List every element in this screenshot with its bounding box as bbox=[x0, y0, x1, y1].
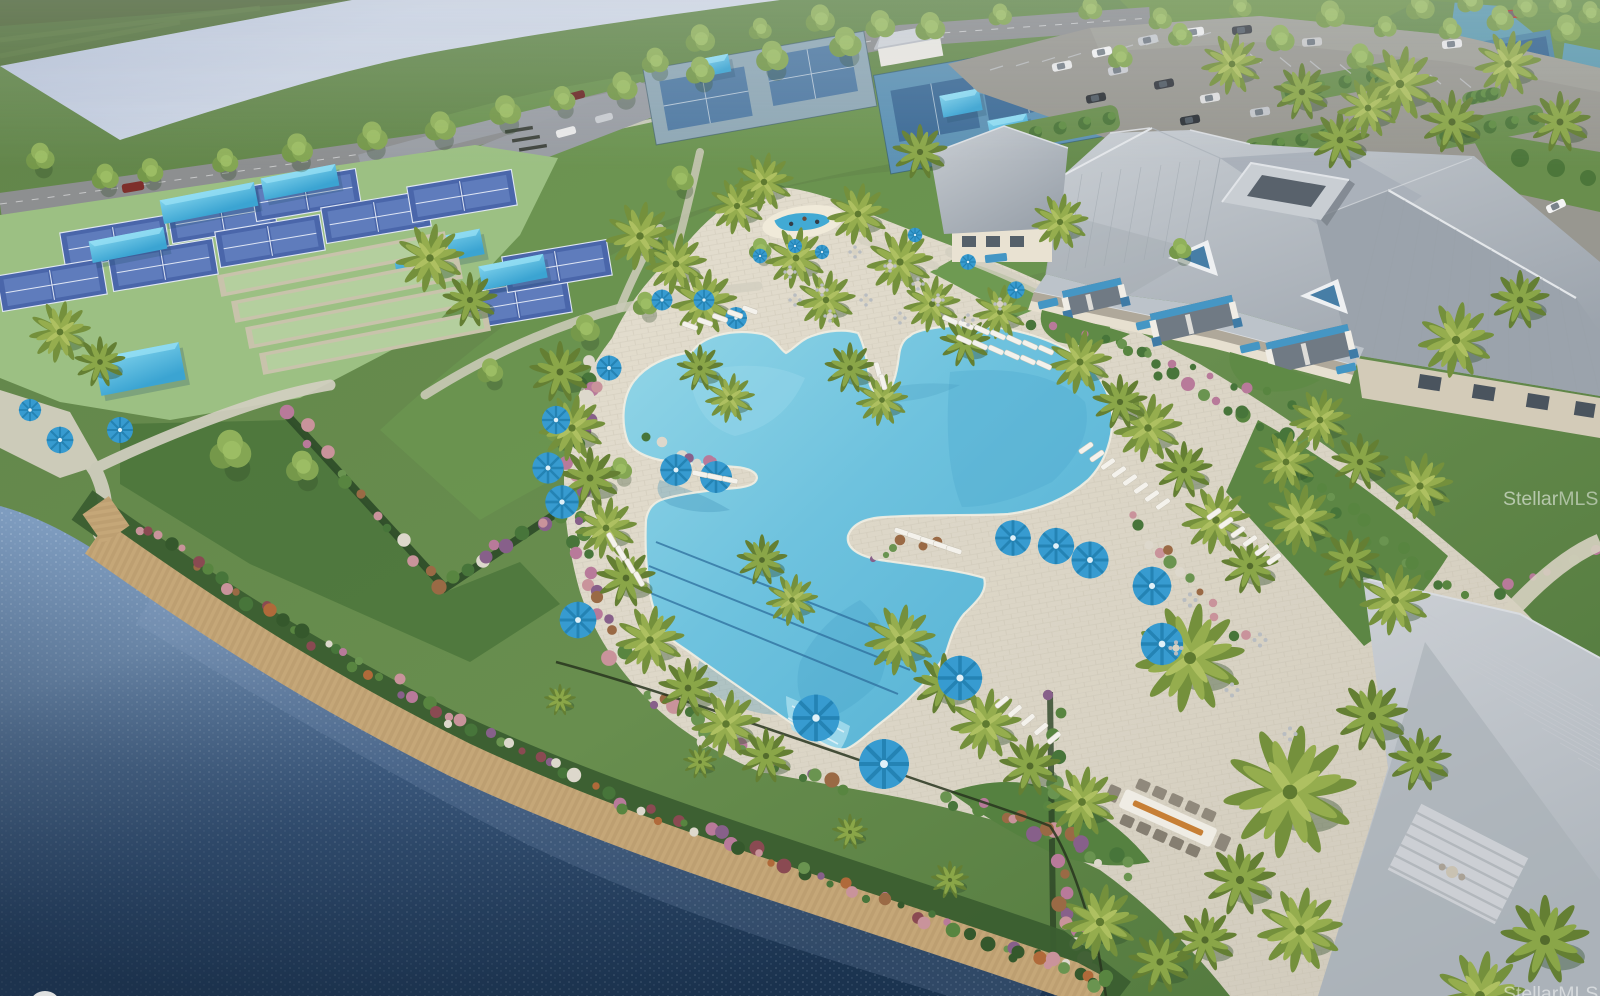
svg-text:StellarMLS: StellarMLS bbox=[1503, 488, 1598, 510]
svg-text:StellarMLS: StellarMLS bbox=[1503, 983, 1598, 996]
